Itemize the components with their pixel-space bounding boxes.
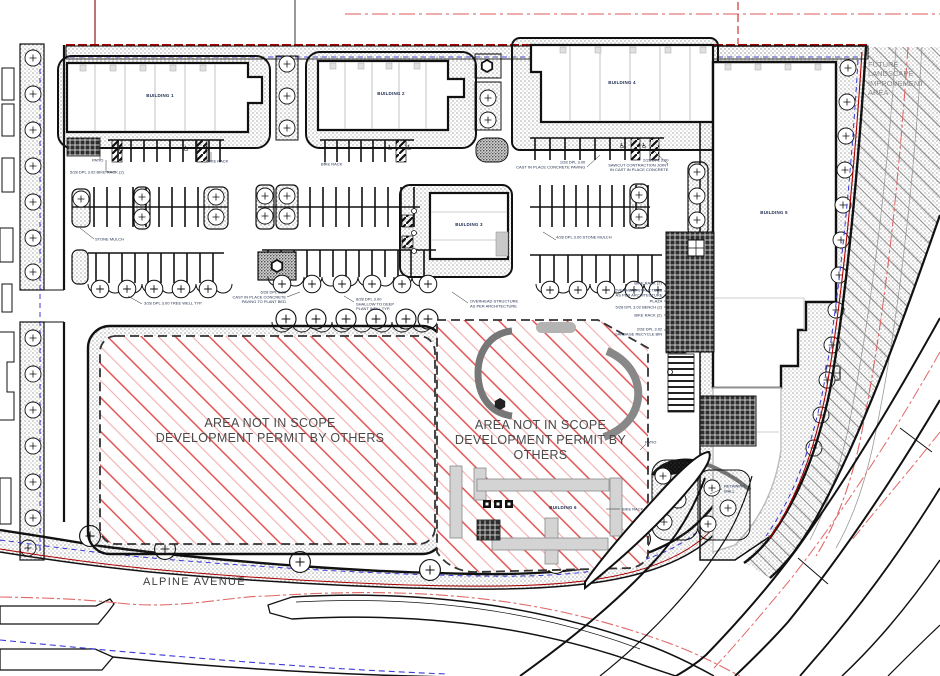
plant-well-callout: 8/28 DPL 3.00 SHALLOW TO DEEP PLANT WELL… (356, 297, 394, 311)
building-3-footprint (430, 138, 508, 259)
accessible-parking-icon: ♿ (118, 146, 124, 153)
accessible-parking-icon: ♿ (387, 145, 393, 152)
bench-callout: 5/28 DPL 3.02 BENCH (2) (615, 305, 662, 310)
retaining-wall-callout: RETAINING WALL (724, 484, 745, 494)
sawcut-joint-callout: 2/28 DPL 3.00 SAWCUT CONTRACTION JOINT I… (608, 158, 668, 172)
tree-well-callout: 3/28 DPL 3.00 TREE WELL TYP. (144, 301, 202, 306)
stone-mulch-callout-1: STONE MULCH (95, 237, 124, 242)
garbage-recycle-callout: 2/28 DPL 3.02 GARBAGE RECYCLE BIN (614, 327, 662, 337)
bike-rack-callout-1: BIKE RACK (207, 159, 228, 164)
building-2-label: BUILDING 2 (361, 91, 421, 96)
plaza-callout: PLAZA (649, 299, 662, 304)
building-4-label: BUILDING 4 (592, 80, 652, 85)
accessible-parking-icon: ♿ (183, 146, 189, 153)
bike-rack-2-callout-2: BIKE RACK (2) (635, 313, 662, 318)
adjacent-context-west (0, 68, 14, 524)
alpine-avenue-label: ALPINE AVENUE (143, 576, 246, 589)
bike-rack-callout-3: BIKE RACK (622, 507, 643, 512)
site-plan-drawing (0, 0, 940, 676)
bike-rack-detail-callout: 5/28 DPL 3.02 BIKE RACK (2) (70, 170, 124, 175)
bike-rack-callout-2: BIKE RACK (321, 162, 342, 167)
accessible-parking-icon: ♿ (204, 146, 210, 153)
paving-to-plant-bed-callout: 6/28 DPL 3.00 CAST IN PLACE CONCRETE PAV… (233, 290, 286, 304)
scope-area-right-label: AREA NOT IN SCOPE DEVELOPMENT PERMIT BY … (438, 418, 643, 462)
building-6-label: BUILDING 6 (541, 505, 586, 510)
bike-rack-2-callout-1: BIKE RACK (2) (635, 281, 662, 286)
accessible-parking-icon: ♿ (406, 145, 412, 152)
building-5-label: BUILDING 5 (744, 210, 804, 215)
site-plan-canvas: BUILDING 1 BUILDING 2 BUILDING 3 BUILDIN… (0, 0, 940, 676)
building-1-label: BUILDING 1 (130, 93, 190, 98)
building-3-label: BUILDING 3 (439, 222, 499, 227)
stone-mulch-callout-2: 4/28 DPL 3.00 STONE MULCH (556, 235, 612, 240)
concrete-paving-callout: 1/28 DPL 3.00 CAST IN PLACE CONCRETE PAV… (516, 160, 585, 170)
accessible-parking-icon: ♿ (619, 143, 625, 150)
overhead-structure-callout-2: OVERHEAD STRUCTURE AS PER ARCHITECTURE (614, 288, 662, 298)
alpine-avenue-roadway (0, 593, 740, 676)
overhead-structure-callout-1: OVERHEAD STRUCTURE AS PER ARCHITECTURE (470, 299, 518, 309)
patio-callout-2: PATIO (645, 440, 656, 445)
patio-callout: PATIO (92, 158, 103, 163)
accessible-parking-icon: ♿ (641, 143, 647, 150)
scope-area-left-label: AREA NOT IN SCOPE DEVELOPMENT PERMIT BY … (115, 416, 425, 446)
future-landscape-label: FUTURE LANDSCAPE IMPROVEMENT AREA (868, 60, 940, 98)
top-property-lines (66, 0, 940, 45)
